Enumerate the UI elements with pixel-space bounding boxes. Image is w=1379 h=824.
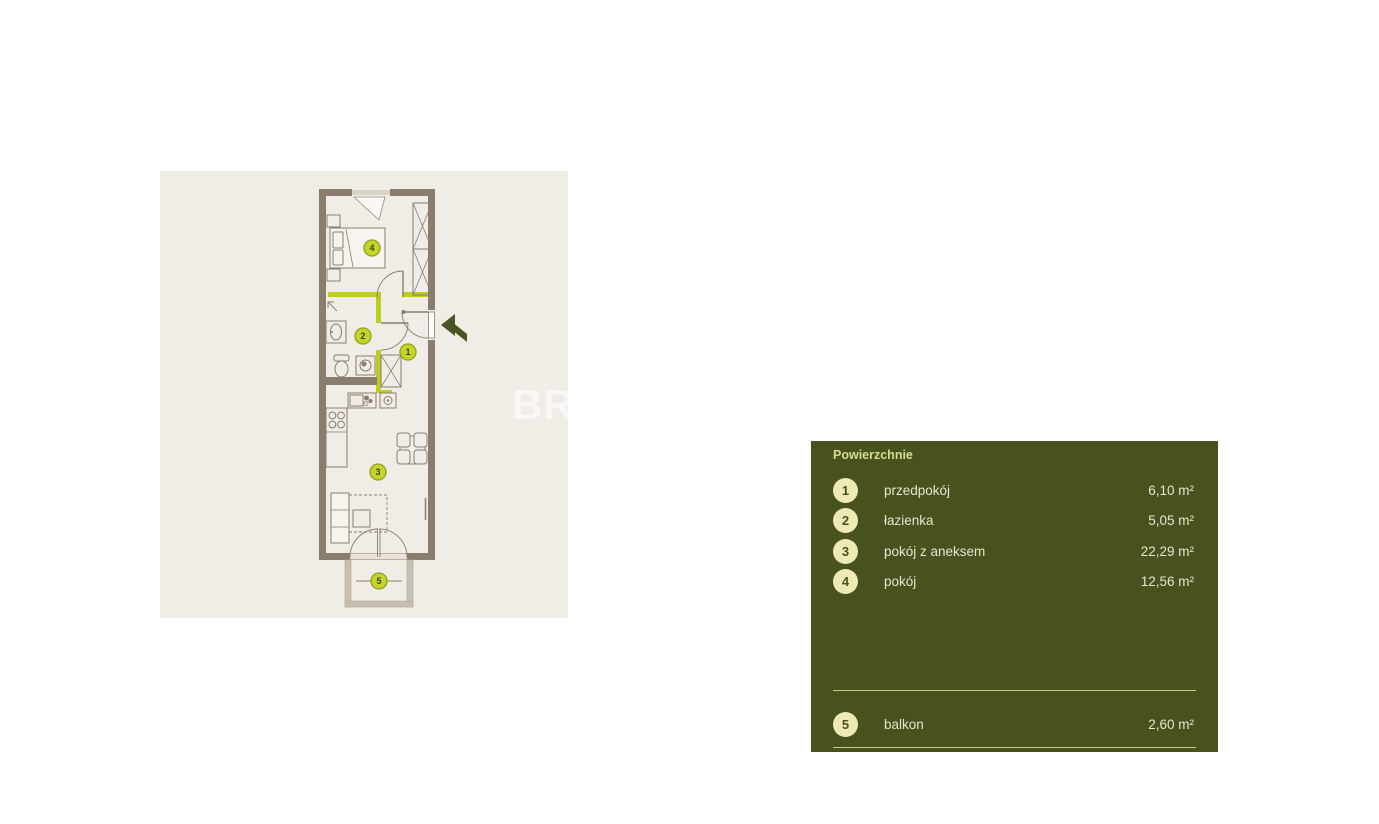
watermark: BR bbox=[512, 381, 568, 429]
room-label: łazienka bbox=[884, 513, 934, 528]
plan-badge-2-number: 2 bbox=[360, 331, 365, 341]
dining-set bbox=[397, 433, 427, 464]
floorplan-panel: 1 2 3 4 5 BR bbox=[160, 171, 568, 618]
room-area: 22,29 m² bbox=[1141, 544, 1194, 559]
legend-title: Powierzchnie bbox=[833, 448, 913, 462]
room-area: 5,05 m² bbox=[1148, 513, 1194, 528]
hall-cabinet bbox=[381, 355, 401, 387]
plan-badge-2: 2 bbox=[355, 328, 371, 344]
legend-row-pokoj-z-aneksem: 3 pokój z aneksem 22,29 m² bbox=[833, 539, 1194, 564]
shower-arrow-icon bbox=[328, 302, 337, 311]
toilet bbox=[334, 355, 349, 377]
bathroom-bottom-wall bbox=[326, 377, 377, 385]
room-number-badge: 5 bbox=[833, 712, 858, 737]
legend-panel: Powierzchnie 1 przedpokój 6,10 m² 2 łazi… bbox=[811, 441, 1218, 752]
plan-badge-1: 1 bbox=[400, 344, 416, 360]
floor-drain bbox=[380, 393, 396, 408]
room-label: przedpokój bbox=[884, 483, 950, 498]
plan-badge-5-number: 5 bbox=[376, 576, 381, 586]
plan-badge-5: 5 bbox=[371, 573, 387, 589]
room-label: pokój z aneksem bbox=[884, 544, 985, 559]
floorplan-drawing: 1 2 3 4 5 bbox=[160, 171, 568, 618]
plan-badge-3: 3 bbox=[370, 464, 386, 480]
plan-badge-4: 4 bbox=[364, 240, 380, 256]
entrance-door bbox=[402, 310, 437, 340]
room-number-badge: 2 bbox=[833, 508, 858, 533]
kitchen-sink bbox=[348, 393, 376, 408]
sofa bbox=[331, 493, 387, 543]
legend-row-lazienka: 2 łazienka 5,05 m² bbox=[833, 508, 1194, 533]
room-label: balkon bbox=[884, 717, 924, 732]
kitchen-counter-stove bbox=[326, 408, 347, 467]
room-area: 2,60 m² bbox=[1148, 717, 1194, 732]
legend-row-pokoj: 4 pokój 12,56 m² bbox=[833, 569, 1194, 594]
plan-badge-1-number: 1 bbox=[405, 347, 410, 357]
room-number-badge: 1 bbox=[833, 478, 858, 503]
room-area: 6,10 m² bbox=[1148, 483, 1194, 498]
entrance-arrow-icon bbox=[441, 314, 467, 342]
divider bbox=[833, 690, 1196, 691]
room-number-badge: 3 bbox=[833, 539, 858, 564]
plan-badge-4-number: 4 bbox=[369, 243, 374, 253]
window bbox=[352, 190, 390, 220]
legend-row-przedpokoj: 1 przedpokój 6,10 m² bbox=[833, 478, 1194, 503]
room-area: 12,56 m² bbox=[1141, 574, 1194, 589]
washbasin bbox=[326, 321, 346, 343]
room-label: pokój bbox=[884, 574, 916, 589]
plan-badge-3-number: 3 bbox=[375, 467, 380, 477]
room-number-badge: 4 bbox=[833, 569, 858, 594]
divider bbox=[833, 747, 1196, 748]
washing-machine bbox=[356, 356, 375, 375]
page: 1 2 3 4 5 BR Powierzchnie 1 bbox=[0, 0, 1379, 824]
balcony-door bbox=[350, 529, 407, 560]
legend-row-balkon: 5 balkon 2,60 m² bbox=[833, 712, 1194, 737]
